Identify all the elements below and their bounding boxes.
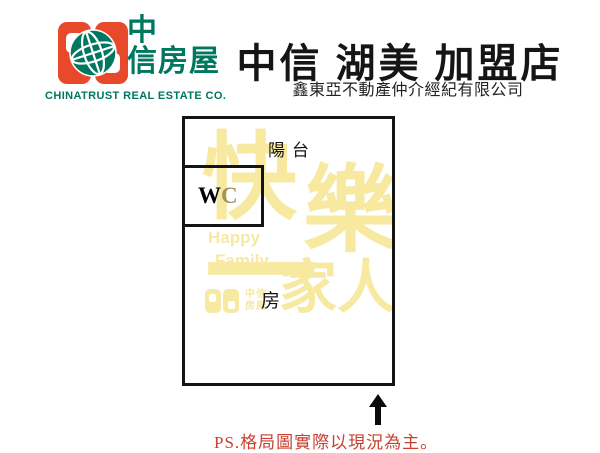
page-subtitle: 鑫東亞不動產仲介經紀有限公司 [248, 76, 568, 100]
mini-logo-left-square [205, 289, 221, 313]
brand-name-english: CHINATRUST REAL ESTATE CO. [45, 90, 226, 102]
mini-logo-right-square [223, 289, 239, 313]
ps-note: PS.格局圖實際以現況為主。 [214, 428, 438, 453]
wc-label: WC [198, 183, 238, 209]
up-arrow-icon [369, 394, 387, 425]
up-arrow-stem [375, 406, 381, 425]
brand-name-line1: 中 [127, 16, 158, 46]
wc-label-c: C [221, 183, 238, 208]
room-label: 房 [261, 286, 280, 313]
watermark-chars-jiaren: 家人 [279, 259, 395, 317]
header: 中 信房屋 CHINATRUST REAL ESTATE CO. 中信 湖美 加… [0, 0, 600, 110]
chinatrust-logo-icon [56, 17, 130, 88]
wc-label-w: W [198, 183, 221, 208]
floor-plan: 快 樂 Happy Family 一 家人 中信 房屋 陽台 WC 房 [182, 116, 395, 386]
balcony-label: 陽台 [268, 136, 316, 161]
